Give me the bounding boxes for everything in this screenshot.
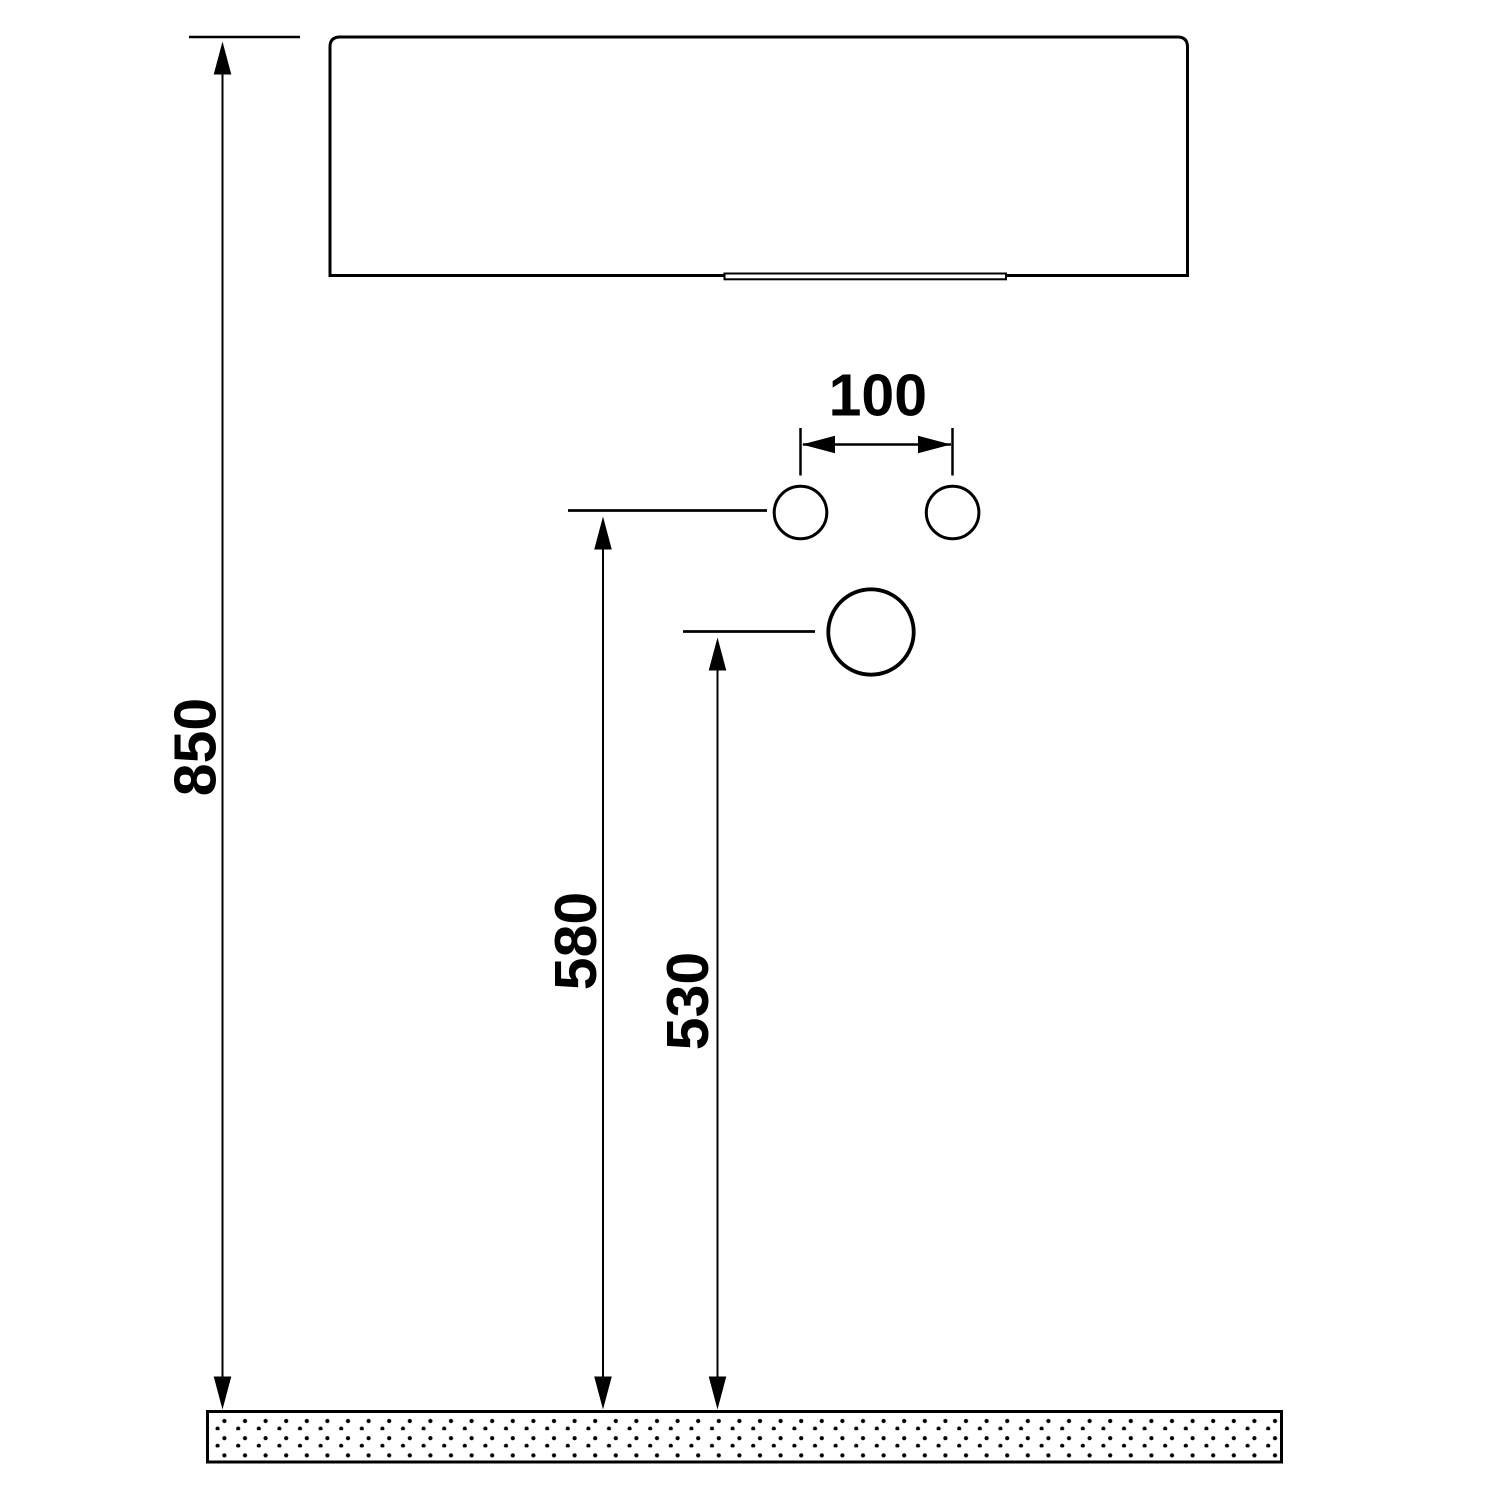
svg-text:580: 580 [543,892,609,990]
svg-text:530: 530 [655,952,721,1050]
svg-text:100: 100 [829,363,927,429]
svg-text:850: 850 [163,698,229,796]
